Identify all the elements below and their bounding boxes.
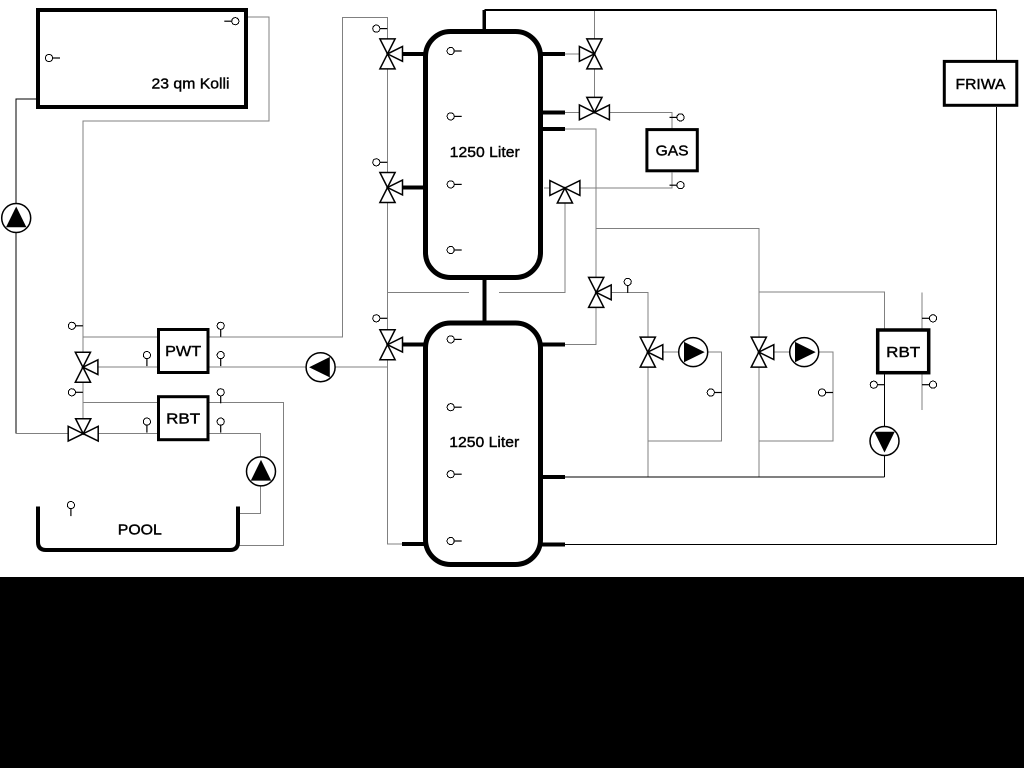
svg-text:23 qm Kolli: 23 qm Kolli xyxy=(152,76,230,93)
svg-text:RBT: RBT xyxy=(166,411,200,428)
svg-text:GAS: GAS xyxy=(656,143,689,160)
svg-text:1250 Liter: 1250 Liter xyxy=(450,144,520,161)
svg-text:POOL: POOL xyxy=(118,522,162,539)
svg-text:PWT: PWT xyxy=(165,343,201,360)
svg-text:1250 Liter: 1250 Liter xyxy=(449,434,519,451)
svg-text:FRIWA: FRIWA xyxy=(956,76,1006,93)
svg-text:RBT: RBT xyxy=(886,344,920,361)
